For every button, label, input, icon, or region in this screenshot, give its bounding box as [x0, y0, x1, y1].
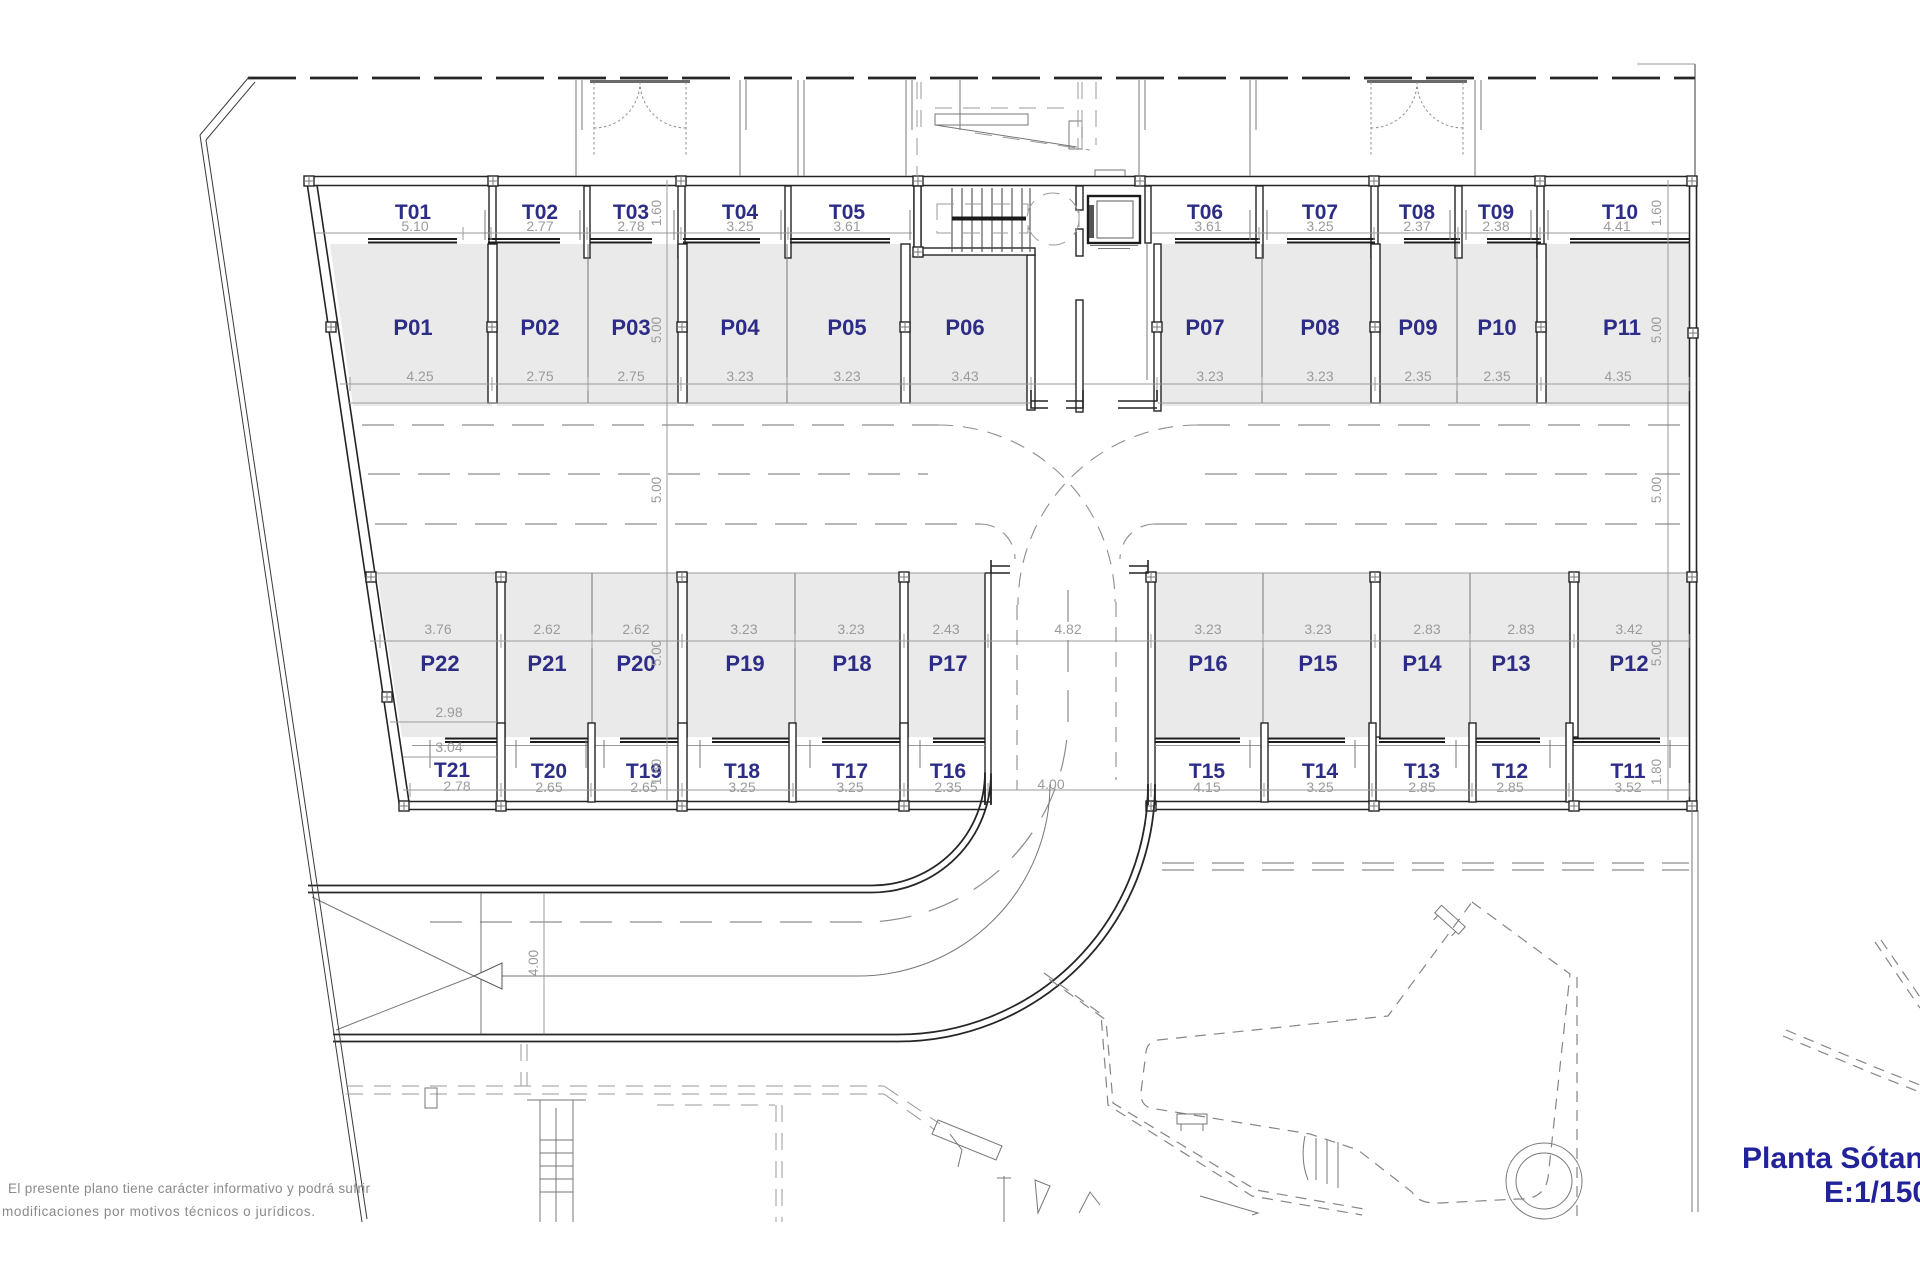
svg-text:4.25: 4.25 [406, 368, 433, 384]
svg-text:5.00: 5.00 [1649, 317, 1664, 343]
svg-text:2.83: 2.83 [1413, 621, 1440, 637]
svg-text:3.76: 3.76 [424, 621, 451, 637]
svg-text:2.35: 2.35 [1483, 368, 1510, 384]
svg-text:2.62: 2.62 [622, 621, 649, 637]
svg-text:P15: P15 [1298, 651, 1337, 676]
svg-text:4.41: 4.41 [1603, 218, 1630, 234]
svg-text:3.25: 3.25 [726, 218, 753, 234]
svg-text:P18: P18 [832, 651, 871, 676]
svg-text:3.23: 3.23 [837, 621, 864, 637]
svg-text:5.00: 5.00 [649, 317, 664, 343]
svg-text:P06: P06 [945, 315, 984, 340]
svg-text:El presente plano tiene caráct: El presente plano tiene carácter informa… [8, 1181, 371, 1196]
svg-text:3.25: 3.25 [1306, 779, 1333, 795]
svg-text:4.35: 4.35 [1604, 368, 1631, 384]
svg-text:P12: P12 [1609, 651, 1648, 676]
svg-text:3.25: 3.25 [1306, 218, 1333, 234]
svg-text:2.85: 2.85 [1408, 779, 1435, 795]
svg-text:4.82: 4.82 [1054, 621, 1081, 637]
svg-text:1.60: 1.60 [649, 200, 664, 226]
svg-text:5.10: 5.10 [401, 218, 428, 234]
svg-text:3.61: 3.61 [1194, 218, 1221, 234]
svg-text:P14: P14 [1402, 651, 1442, 676]
svg-text:2.35: 2.35 [934, 779, 961, 795]
svg-text:1.80: 1.80 [1649, 759, 1664, 785]
svg-text:2.65: 2.65 [535, 779, 562, 795]
svg-text:P21: P21 [527, 651, 566, 676]
svg-text:P09: P09 [1398, 315, 1437, 340]
svg-text:2.98: 2.98 [435, 704, 462, 720]
svg-text:P07: P07 [1185, 315, 1224, 340]
svg-text:modificaciones por motivos téc: modificaciones por motivos técnicos o ju… [2, 1204, 315, 1219]
svg-text:2.35: 2.35 [1404, 368, 1431, 384]
svg-text:2.77: 2.77 [526, 218, 553, 234]
svg-text:P22: P22 [420, 651, 459, 676]
svg-text:P01: P01 [393, 315, 432, 340]
svg-text:2.37: 2.37 [1403, 218, 1430, 234]
svg-text:2.38: 2.38 [1482, 218, 1509, 234]
svg-text:3.25: 3.25 [836, 779, 863, 795]
svg-text:5.00: 5.00 [649, 477, 664, 503]
svg-text:3.52: 3.52 [1614, 779, 1641, 795]
svg-text:3.23: 3.23 [1196, 368, 1223, 384]
svg-text:4.00: 4.00 [526, 950, 541, 976]
svg-text:P17: P17 [928, 651, 967, 676]
svg-text:3.23: 3.23 [730, 621, 757, 637]
svg-text:P10: P10 [1477, 315, 1516, 340]
svg-text:E:1/150: E:1/150 [1824, 1176, 1920, 1209]
svg-text:4.15: 4.15 [1193, 779, 1220, 795]
svg-text:P13: P13 [1491, 651, 1530, 676]
svg-text:P19: P19 [725, 651, 764, 676]
svg-text:3.25: 3.25 [728, 779, 755, 795]
svg-text:5.00: 5.00 [1649, 477, 1664, 503]
svg-text:P16: P16 [1188, 651, 1227, 676]
svg-text:P05: P05 [827, 315, 866, 340]
svg-text:2.78: 2.78 [617, 218, 644, 234]
svg-text:3.04: 3.04 [435, 739, 462, 755]
svg-text:2.85: 2.85 [1496, 779, 1523, 795]
svg-text:2.75: 2.75 [526, 368, 553, 384]
svg-text:3.42: 3.42 [1615, 621, 1642, 637]
svg-text:P11: P11 [1603, 315, 1641, 340]
svg-text:2.62: 2.62 [533, 621, 560, 637]
svg-text:3.23: 3.23 [1304, 621, 1331, 637]
svg-text:P02: P02 [520, 315, 559, 340]
svg-text:3.23: 3.23 [726, 368, 753, 384]
svg-text:1.80: 1.80 [649, 759, 664, 785]
svg-text:5.00: 5.00 [649, 640, 664, 666]
svg-text:2.43: 2.43 [932, 621, 959, 637]
svg-text:Planta Sótano: Planta Sótano [1742, 1142, 1920, 1175]
svg-text:P04: P04 [720, 315, 760, 340]
svg-text:P08: P08 [1300, 315, 1339, 340]
svg-text:2.75: 2.75 [617, 368, 644, 384]
svg-text:3.43: 3.43 [951, 368, 978, 384]
svg-text:2.83: 2.83 [1507, 621, 1534, 637]
svg-text:3.23: 3.23 [1306, 368, 1333, 384]
svg-text:1.60: 1.60 [1649, 200, 1664, 226]
svg-text:5.00: 5.00 [1649, 640, 1664, 666]
svg-text:3.23: 3.23 [1194, 621, 1221, 637]
svg-text:P03: P03 [611, 315, 650, 340]
svg-text:3.23: 3.23 [833, 368, 860, 384]
svg-text:3.61: 3.61 [833, 218, 860, 234]
svg-text:2.78: 2.78 [443, 778, 470, 794]
